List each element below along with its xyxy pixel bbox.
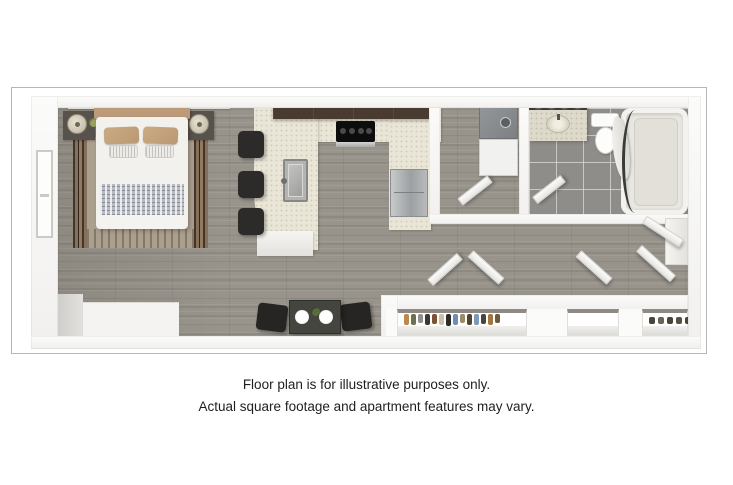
disclaimer-text: Floor plan is for illustrative purposes … <box>0 374 733 418</box>
lamp-icon <box>67 114 87 134</box>
lamp-icon <box>189 114 209 134</box>
plate-icon <box>319 310 333 324</box>
wall-right <box>688 96 701 349</box>
counter-end-panel <box>257 231 313 256</box>
entry-step <box>82 302 179 336</box>
wall <box>386 295 688 310</box>
closet-with-clothes <box>397 309 527 336</box>
dining-chair <box>339 301 372 331</box>
closet-shelf <box>398 326 526 335</box>
oven-front <box>336 142 375 147</box>
pillow <box>145 145 174 158</box>
wall-bottom <box>31 336 701 349</box>
washer-icon <box>479 106 518 139</box>
pillow <box>109 145 138 158</box>
bar-stool <box>238 208 264 235</box>
dining-table <box>289 300 341 334</box>
rug-stripe-band <box>194 137 208 248</box>
bar-stool <box>238 131 264 158</box>
shower-curtain-rod <box>622 110 648 213</box>
pillow <box>104 126 140 144</box>
refrigerator-icon <box>390 169 428 217</box>
bar-stool <box>238 171 264 198</box>
disclaimer-line-1: Floor plan is for illustrative purposes … <box>0 374 733 396</box>
wall <box>429 96 440 223</box>
wall <box>519 96 529 223</box>
plate-icon <box>295 310 309 324</box>
disclaimer-line-2: Actual square footage and apartment feat… <box>0 396 733 418</box>
dining-chair <box>255 302 288 332</box>
shoe-row <box>649 317 691 324</box>
window-icon <box>36 150 53 238</box>
comforter <box>98 215 186 229</box>
cooktop-icon <box>336 121 375 142</box>
bathroom-sink-icon <box>546 115 570 133</box>
patterned-blanket <box>100 184 184 215</box>
closet-shelf <box>643 326 687 335</box>
plant-icon <box>311 307 320 316</box>
wall-top <box>31 96 701 108</box>
floor-plan-page: Floor plan is for illustrative purposes … <box>0 0 733 485</box>
floor-plan-image <box>11 87 707 354</box>
closet-empty <box>567 309 619 336</box>
pillow <box>143 126 179 144</box>
hanging-clothes <box>404 314 500 326</box>
kitchen-sink-icon <box>283 159 308 202</box>
closet-with-shoes <box>642 309 688 336</box>
rug-fringe <box>87 229 194 248</box>
dryer-icon <box>479 139 518 176</box>
rug-stripe-band <box>73 137 87 248</box>
entry-step-face <box>58 294 83 336</box>
closet-shelf <box>568 326 618 335</box>
